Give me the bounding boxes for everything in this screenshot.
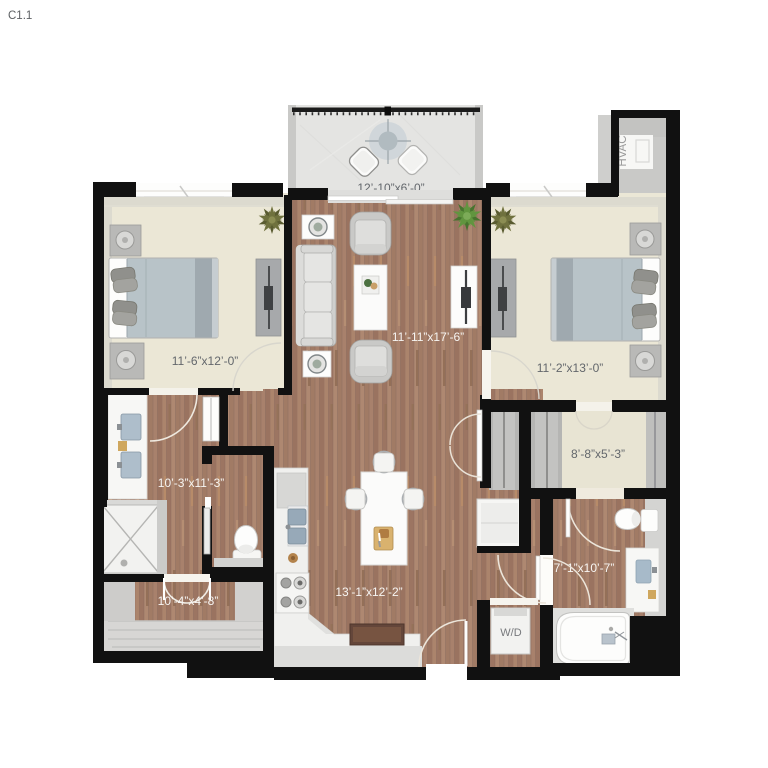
svg-text:10’-3”x11’-3”: 10’-3”x11’-3” xyxy=(158,476,224,490)
svg-text:W/D: W/D xyxy=(500,627,521,639)
svg-text:C1.1: C1.1 xyxy=(8,10,32,22)
svg-text:11’-6”x12’-0”: 11’-6”x12’-0” xyxy=(172,354,238,368)
svg-text:8’-8”x5’-3”: 8’-8”x5’-3” xyxy=(571,447,625,461)
svg-text:10’-4”x4’-8”: 10’-4”x4’-8” xyxy=(158,594,219,608)
svg-text:11’-11”x17’-6”: 11’-11”x17’-6” xyxy=(392,330,464,344)
svg-text:7’-1”x10’-7”: 7’-1”x10’-7” xyxy=(554,561,615,575)
svg-text:13’-1”x12’-2”: 13’-1”x12’-2” xyxy=(335,585,402,599)
svg-text:11’-2”x13’-0”: 11’-2”x13’-0” xyxy=(537,361,603,375)
